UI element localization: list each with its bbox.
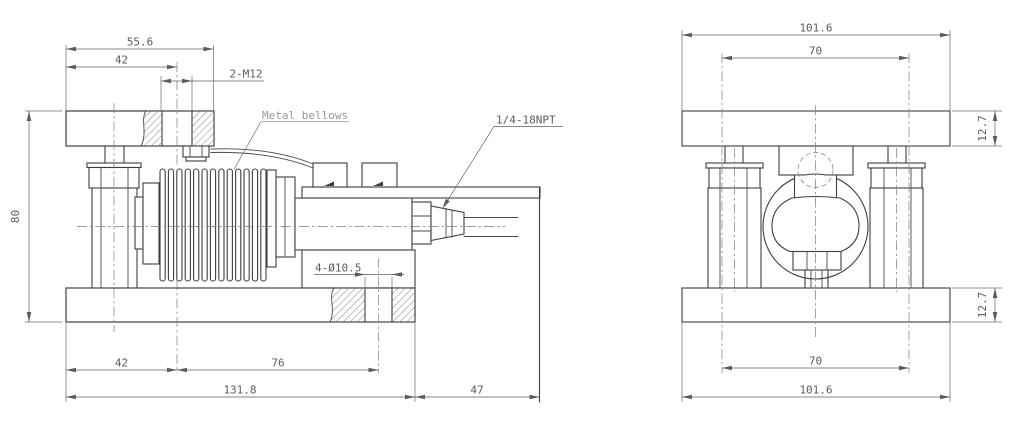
metal-bellows-label: Metal bellows	[262, 109, 348, 122]
load-button-block	[779, 146, 853, 175]
dim-12-7-top: 12.7	[976, 115, 989, 142]
dim-42-top: 42	[115, 54, 128, 67]
bellows-fins	[160, 169, 266, 281]
dim-101-6-top: 101.6	[799, 22, 832, 35]
cable-gland	[412, 202, 518, 244]
dim-2-m12: 2-M12	[229, 68, 262, 81]
dim-12-7-bottom: 12.7	[976, 292, 989, 319]
dim-131-8: 131.8	[223, 384, 256, 397]
dim-70-bottom: 70	[809, 355, 822, 368]
holes-label: 4-Ø10.5	[315, 262, 361, 275]
dim-47: 47	[470, 384, 483, 397]
flexible-conduit-curve	[211, 149, 313, 168]
dim-42-bottom: 42	[115, 357, 128, 370]
npt-label: 1/4-18NPT	[496, 114, 556, 127]
engineering-drawing-page: 55.6 42 2-M12 Metal bellows 1/4-18NPT 80…	[0, 0, 1024, 439]
metal-bellows	[135, 169, 295, 281]
side-screw-head	[183, 146, 209, 161]
side-bottom-plate	[66, 288, 415, 322]
front-centerlines	[722, 53, 909, 373]
load-cell-mounting-drawing: 55.6 42 2-M12 Metal bellows 1/4-18NPT 80…	[0, 0, 1024, 439]
dim-55-6: 55.6	[127, 36, 154, 49]
side-top-plate	[66, 111, 214, 146]
side-view: 55.6 42 2-M12 Metal bellows 1/4-18NPT 80…	[9, 36, 563, 403]
dim-70-top: 70	[809, 45, 822, 58]
dim-80: 80	[9, 210, 22, 223]
load-cell-body	[295, 163, 540, 402]
bottom-nut	[793, 252, 841, 271]
dim-76: 76	[271, 357, 284, 370]
dim-101-6-bottom: 101.6	[799, 384, 832, 397]
front-view: 101.6 70 12.7 12.7 70 101.6	[682, 22, 1002, 403]
